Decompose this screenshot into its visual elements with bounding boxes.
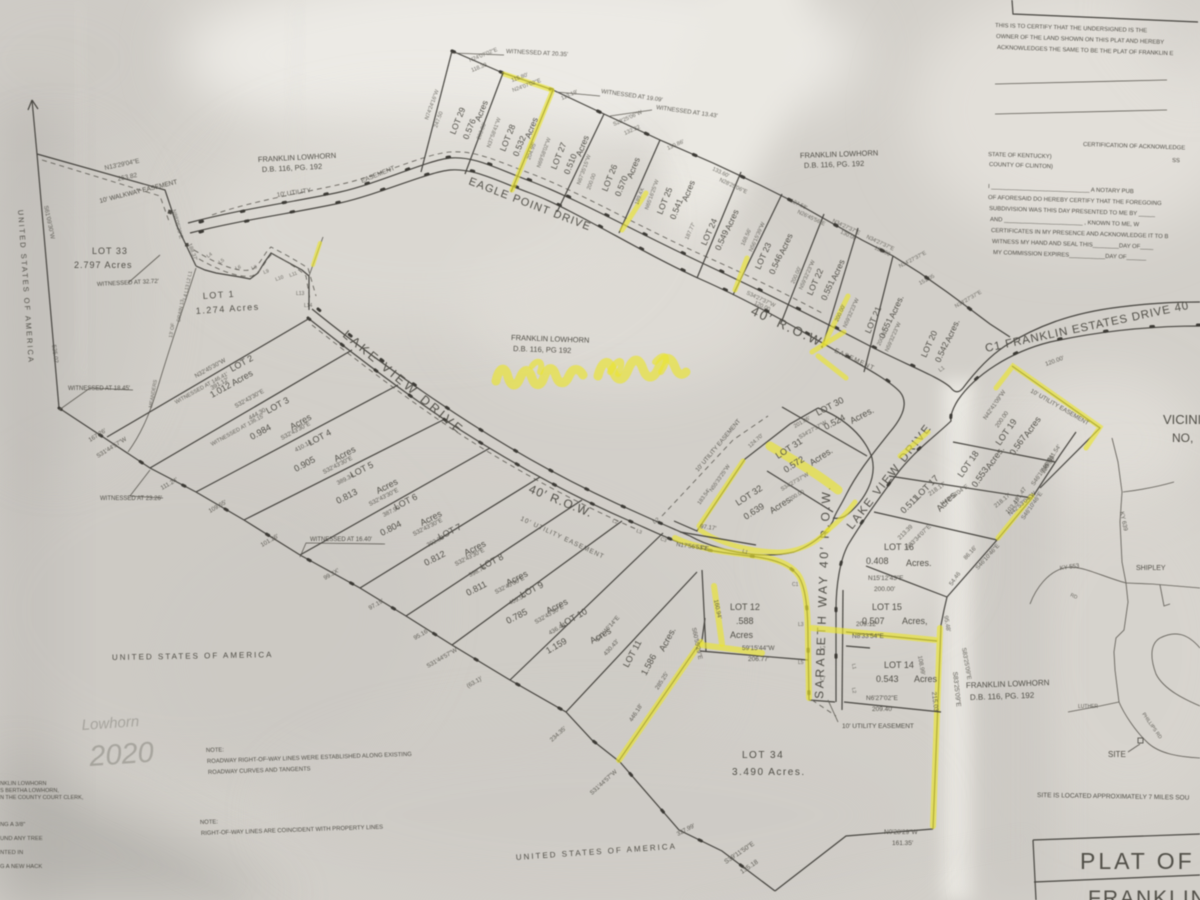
svg-text:NTED IN: NTED IN (0, 850, 23, 856)
svg-text:Acres,: Acres, (902, 616, 928, 626)
svg-text:L2: L2 (820, 646, 826, 652)
svg-text:N THE COUNTY COURT CLERK,: N THE COUNTY COURT CLERK, (0, 795, 84, 801)
svg-text:SS: SS (1172, 158, 1180, 164)
svg-text:Acres.: Acres. (906, 558, 932, 568)
svg-text:NG A 3/8": NG A 3/8" (0, 822, 25, 828)
svg-text:N15′12′43"E: N15′12′43"E (868, 575, 904, 582)
svg-text:NOTE:: NOTE: (206, 747, 225, 754)
svg-text:2.797 Acres: 2.797 Acres (74, 260, 133, 270)
svg-text:3.490 Acres.: 3.490 Acres. (732, 767, 806, 778)
svg-text:161.35′: 161.35′ (892, 840, 914, 847)
svg-text:2020: 2020 (87, 737, 155, 773)
svg-text:206.77′: 206.77′ (748, 656, 770, 663)
svg-text:PLAT OF: PLAT OF (1080, 848, 1195, 874)
svg-text:UND ANY TREE: UND ANY TREE (0, 836, 43, 842)
svg-text:L3: L3 (798, 622, 804, 628)
svg-text:VICINITY: VICINITY (1163, 412, 1200, 427)
svg-text:0.507: 0.507 (862, 616, 885, 626)
svg-text:Acres: Acres (914, 674, 938, 684)
svg-text:0.408: 0.408 (866, 556, 889, 566)
svg-text:G A NEW HACK: G A NEW HACK (0, 864, 42, 870)
svg-text:10′ UTILITY EASEMENT: 10′ UTILITY EASEMENT (842, 723, 914, 730)
svg-text:NO,: NO, (1172, 431, 1193, 445)
svg-text:0.543: 0.543 (876, 674, 899, 684)
svg-text:L13: L13 (296, 291, 305, 297)
svg-text:SITE: SITE (1108, 750, 1126, 759)
svg-text:Acres: Acres (730, 630, 754, 640)
svg-text:LOT 33: LOT 33 (92, 246, 128, 256)
svg-text:209.40′: 209.40′ (872, 706, 894, 713)
svg-text:NKLIN LOWHORN: NKLIN LOWHORN (0, 781, 46, 787)
svg-text:200.00′: 200.00′ (874, 586, 896, 593)
svg-text:N0′28′29"W: N0′28′29"W (884, 829, 919, 836)
svg-text:L14: L14 (304, 303, 313, 309)
svg-text:WITNESSED AT 23.26′: WITNESSED AT 23.26′ (100, 496, 163, 502)
svg-text:WITNESSED AT 16.40′: WITNESSED AT 16.40′ (310, 537, 373, 543)
svg-text:LOT 15: LOT 15 (872, 602, 902, 612)
svg-text:LOT 14: LOT 14 (884, 660, 914, 670)
svg-text:C1: C1 (792, 582, 799, 588)
svg-text:LOT 12: LOT 12 (730, 602, 760, 612)
svg-text:N8′33′54"E: N8′33′54"E (852, 633, 885, 640)
svg-text:S BERTHA LOWHORN,: S BERTHA LOWHORN, (0, 788, 59, 794)
svg-text:LUTHER: LUTHER (1078, 704, 1098, 710)
svg-text:59′15′44"W: 59′15′44"W (742, 645, 775, 652)
svg-text:L7: L7 (820, 676, 826, 682)
svg-text:L5: L5 (798, 660, 804, 666)
svg-text:LOT 34: LOT 34 (742, 750, 784, 761)
svg-text:NOTE:: NOTE: (200, 819, 219, 826)
svg-text:WITNESSED AT 18.45′: WITNESSED AT 18.45′ (68, 386, 131, 392)
svg-text:N6′27′02"E: N6′27′02"E (866, 695, 899, 702)
svg-text:FRANKLIN E: FRANKLIN E (1088, 887, 1200, 900)
svg-text:SHIPLEY: SHIPLEY (1136, 565, 1166, 572)
svg-text:.588: .588 (736, 616, 754, 626)
